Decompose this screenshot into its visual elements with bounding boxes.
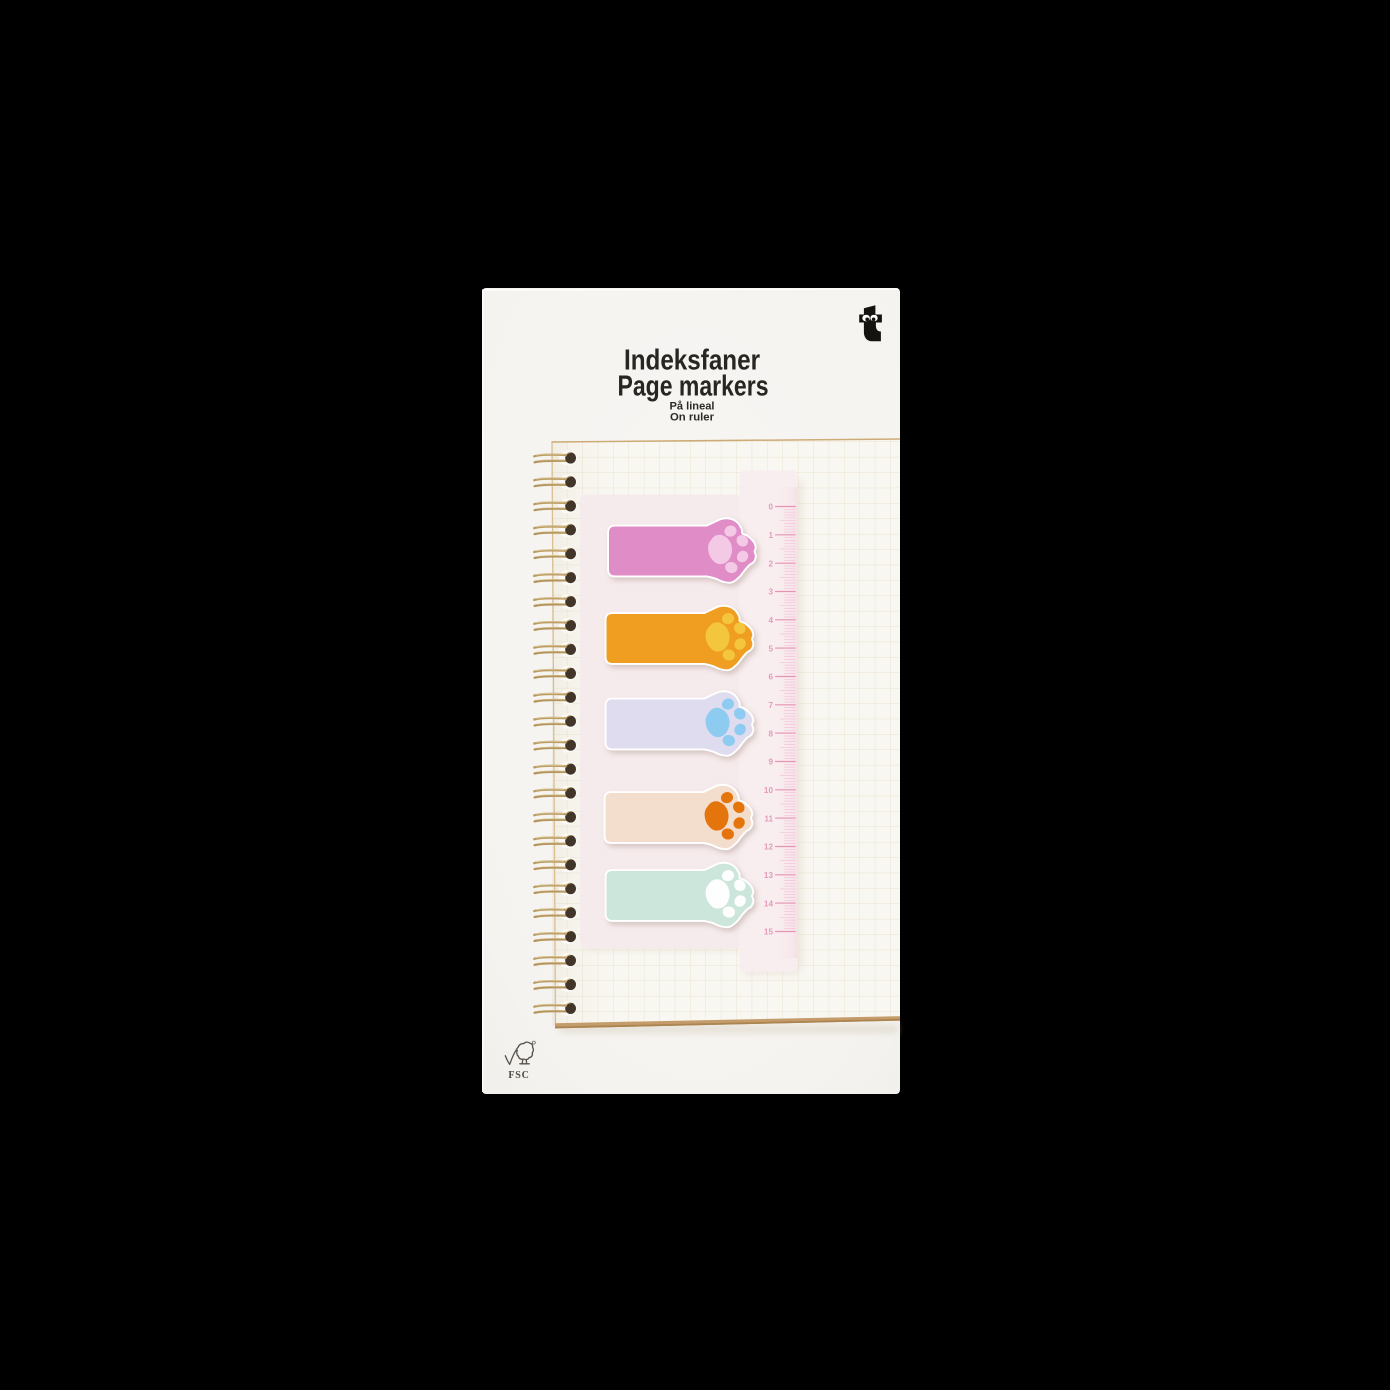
svg-text:0: 0 <box>768 503 773 512</box>
svg-text:På lineal: På lineal <box>670 400 715 412</box>
svg-text:11: 11 <box>764 814 773 823</box>
svg-text:3: 3 <box>768 588 773 597</box>
svg-text:14: 14 <box>764 899 774 908</box>
svg-text:9: 9 <box>768 758 773 767</box>
svg-text:13: 13 <box>764 871 774 880</box>
svg-text:4: 4 <box>768 616 773 625</box>
svg-text:7: 7 <box>768 701 773 710</box>
svg-text:1: 1 <box>768 531 773 540</box>
svg-text:FSC: FSC <box>508 1070 529 1081</box>
svg-text:On ruler: On ruler <box>670 412 715 424</box>
svg-text:10: 10 <box>764 786 774 795</box>
svg-text:12: 12 <box>764 843 774 852</box>
svg-text:5: 5 <box>768 644 773 653</box>
svg-text:6: 6 <box>768 673 773 682</box>
svg-text:2: 2 <box>768 559 773 568</box>
svg-text:8: 8 <box>768 729 773 738</box>
svg-text:15: 15 <box>764 928 774 937</box>
svg-text:Page markers: Page markers <box>618 371 769 403</box>
